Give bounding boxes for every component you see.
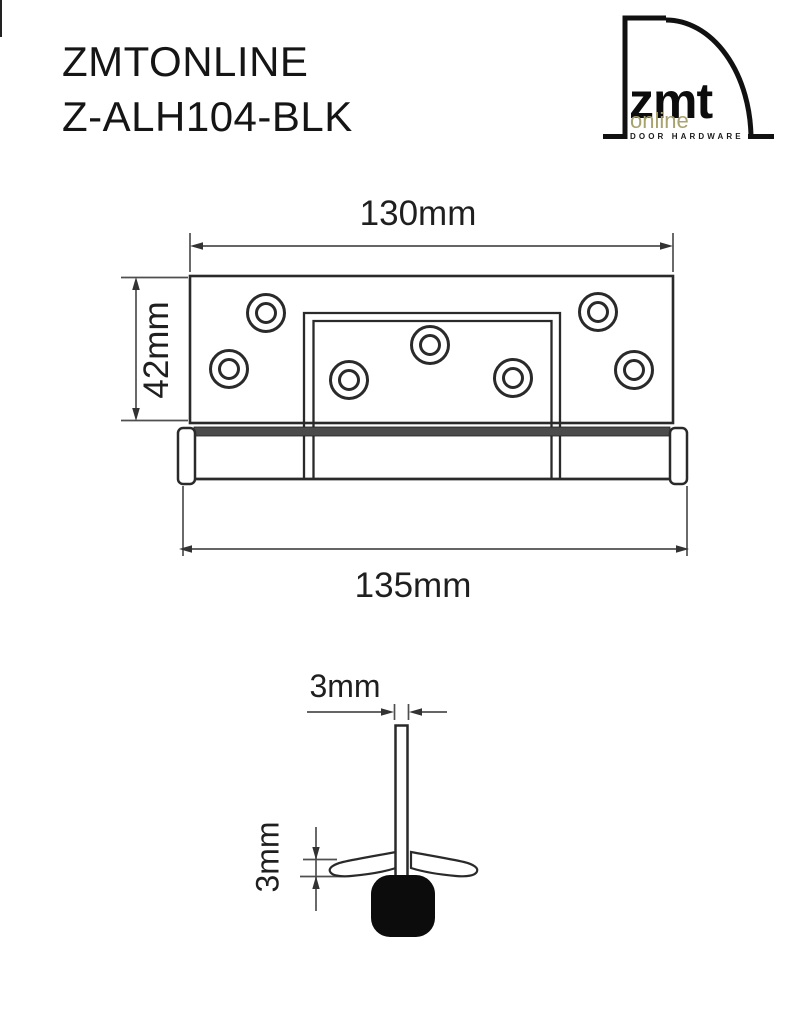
black-barrel-profile xyxy=(371,875,435,937)
screw-hole xyxy=(495,360,532,397)
page-title: ZMTONLINE Z-ALH104-BLK xyxy=(62,34,353,145)
leaf-plate-profile xyxy=(396,726,408,879)
dim-label-135mm: 135mm xyxy=(333,566,493,606)
page-edge-artifact xyxy=(0,0,2,37)
knuckle-left-end-cap xyxy=(178,428,195,484)
screw-hole xyxy=(248,295,285,332)
screw-hole xyxy=(211,351,248,388)
dim-label-130mm: 130mm xyxy=(338,194,498,234)
arrowhead-left xyxy=(190,242,203,249)
dim-label-3mm-flange: 3mm xyxy=(250,821,287,892)
logo-tagline-text: DOOR HARDWARE xyxy=(630,133,744,141)
dim-label-42mm: 42mm xyxy=(137,301,177,398)
knuckle-top-band xyxy=(194,427,670,436)
logo-suffix-text: online xyxy=(630,110,689,132)
arrowhead-up xyxy=(132,277,140,290)
screw-hole xyxy=(580,294,617,331)
left-flange xyxy=(330,852,396,876)
hinge-top-view-drawing xyxy=(100,180,720,620)
arrowhead-left xyxy=(409,708,422,715)
dim-label-3mm-thickness: 3mm xyxy=(285,668,405,705)
arrowhead-up xyxy=(312,876,319,889)
product-code-text: Z-ALH104-BLK xyxy=(62,89,353,144)
knuckle-bar xyxy=(178,427,687,484)
product-diagram-page: ZMTONLINE Z-ALH104-BLK zmt online DOOR H… xyxy=(0,0,805,1024)
knuckle-right-end-cap xyxy=(670,428,687,484)
zmt-logo: zmt online DOOR HARDWARE xyxy=(590,0,790,160)
arrowhead-right xyxy=(381,708,394,715)
right-flange xyxy=(411,852,477,876)
arrowhead-right xyxy=(660,242,673,249)
screw-hole xyxy=(412,327,449,364)
screw-hole xyxy=(331,362,368,399)
dimension-130mm xyxy=(190,233,673,272)
dimension-3mm-thickness xyxy=(307,704,447,720)
arrowhead-left xyxy=(179,545,192,552)
brand-name-text: ZMTONLINE xyxy=(62,34,353,89)
arrowhead-down xyxy=(312,847,319,860)
arrowhead-down xyxy=(132,408,140,421)
screw-hole xyxy=(616,352,653,389)
dimension-135mm xyxy=(183,486,687,556)
